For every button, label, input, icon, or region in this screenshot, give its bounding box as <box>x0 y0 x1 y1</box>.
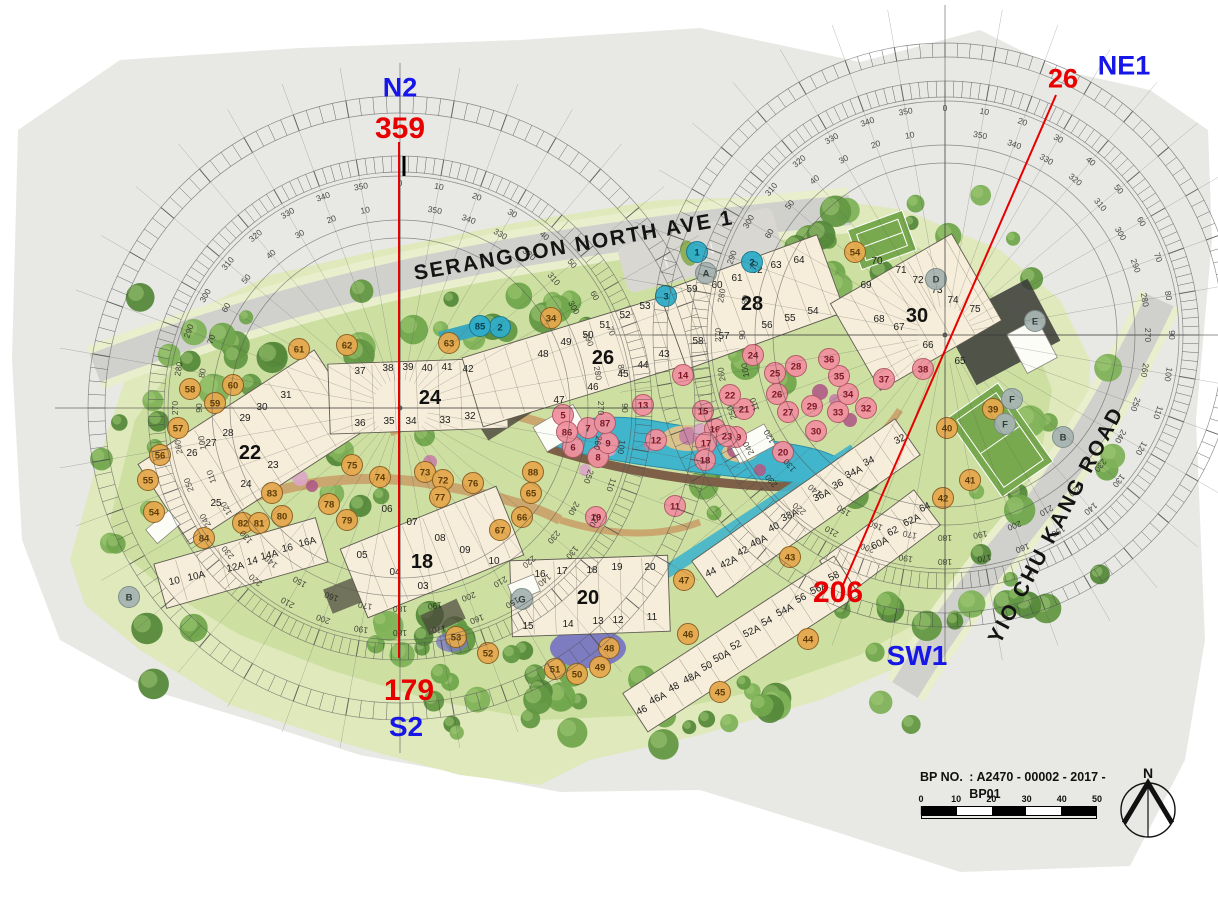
amenity-marker: B <box>1053 427 1074 448</box>
svg-text:29: 29 <box>807 401 818 412</box>
compass-degree-label: 80 <box>739 294 751 305</box>
amenity-marker: 24 <box>743 345 764 366</box>
svg-text:30: 30 <box>811 426 822 437</box>
scale-tick-label: 30 <box>1022 794 1032 804</box>
svg-text:6: 6 <box>570 442 575 453</box>
svg-text:32: 32 <box>861 403 872 414</box>
unit-number: 58 <box>692 336 704 347</box>
amenity-marker: 54 <box>144 502 165 523</box>
svg-text:62: 62 <box>342 340 353 351</box>
flower-bed <box>754 464 766 476</box>
scale-segment <box>922 807 957 815</box>
svg-text:76: 76 <box>468 478 479 489</box>
amenity-marker: 57 <box>168 418 189 439</box>
unit-number: 66 <box>922 340 934 351</box>
svg-text:E: E <box>1032 316 1038 327</box>
svg-text:66: 66 <box>517 512 528 523</box>
svg-text:55: 55 <box>143 475 154 486</box>
block-number: 18 <box>411 551 433 573</box>
svg-text:63: 63 <box>444 338 455 349</box>
compass-degree-label: 80 <box>196 367 208 378</box>
amenity-marker: B <box>119 587 140 608</box>
unit-number: 05 <box>356 550 368 561</box>
svg-text:14: 14 <box>678 370 689 381</box>
svg-text:23: 23 <box>722 431 733 442</box>
svg-text:88: 88 <box>528 467 539 478</box>
scale-segment <box>957 807 992 815</box>
amenity-marker: 58 <box>180 379 201 400</box>
svg-text:33: 33 <box>833 407 844 418</box>
survey-bearing-s2: 179 <box>384 674 434 708</box>
unit-number: 42 <box>462 364 474 375</box>
amenity-marker: F <box>995 414 1016 435</box>
unit-number: 74 <box>947 295 959 306</box>
unit-number: 36 <box>354 418 366 429</box>
amenity-marker: 40 <box>937 418 958 439</box>
scale-segment <box>1061 807 1096 815</box>
amenity-marker: 41 <box>960 470 981 491</box>
unit-number: 08 <box>434 533 446 544</box>
site-plan-page: ↑↓ 2226272829303123242524373839404142363… <box>0 0 1218 903</box>
svg-text:74: 74 <box>375 472 386 483</box>
scale-bar-segments <box>921 806 1097 816</box>
compass-degree-label: 10 <box>434 181 445 193</box>
compass-degree-label: 80 <box>616 363 628 374</box>
scale-segment <box>992 807 1027 815</box>
unit-number: 26 <box>186 448 198 459</box>
amenity-marker: 74 <box>370 467 391 488</box>
svg-text:42: 42 <box>938 493 949 504</box>
unit-number: 39 <box>402 362 414 373</box>
svg-text:40: 40 <box>942 423 953 434</box>
amenity-marker: E <box>1025 311 1046 332</box>
svg-text:8: 8 <box>595 452 600 463</box>
amenity-marker: 67 <box>490 520 511 541</box>
svg-text:80: 80 <box>277 511 288 522</box>
svg-text:28: 28 <box>791 361 802 372</box>
svg-text:87: 87 <box>600 418 611 429</box>
amenity-marker: 43 <box>780 547 801 568</box>
unit-number: 29 <box>239 413 251 424</box>
svg-text:21: 21 <box>739 404 750 415</box>
scale-tick-label: 40 <box>1057 794 1067 804</box>
svg-text:38: 38 <box>918 364 929 375</box>
amenity-marker: 26 <box>767 384 788 405</box>
unit-number: 61 <box>731 273 743 284</box>
svg-text:82: 82 <box>238 518 249 529</box>
amenity-marker: 29 <box>802 396 823 417</box>
amenity-marker: 30 <box>806 421 827 442</box>
unit-number: 63 <box>770 260 782 271</box>
amenity-marker: 28 <box>786 356 807 377</box>
amenity-marker: 49 <box>590 657 611 678</box>
svg-text:50: 50 <box>572 669 583 680</box>
svg-text:47: 47 <box>679 575 690 586</box>
svg-text:A: A <box>703 268 710 279</box>
amenity-marker: 78 <box>319 494 340 515</box>
unit-number: 72 <box>912 275 924 286</box>
svg-text:43: 43 <box>785 552 796 563</box>
survey-point-n2: N2 <box>383 73 418 104</box>
scale-segment <box>1026 807 1061 815</box>
amenity-marker: 66 <box>512 507 533 528</box>
compass-degree-label: 10 <box>360 204 371 216</box>
amenity-marker: 36 <box>819 349 840 370</box>
unit-number: 07 <box>406 517 418 528</box>
svg-text:20: 20 <box>778 447 789 458</box>
svg-text:1: 1 <box>694 247 700 258</box>
scale-tick-label: 50 <box>1092 794 1102 804</box>
amenity-marker: 42 <box>933 488 954 509</box>
unit-number: 56 <box>761 320 773 331</box>
unit-number: 54 <box>807 306 819 317</box>
compass-degree-label: 80 <box>1163 290 1175 301</box>
svg-text:3: 3 <box>663 291 668 302</box>
unit-number: 06 <box>381 504 393 515</box>
svg-text:65: 65 <box>526 488 537 499</box>
svg-text:25: 25 <box>770 368 781 379</box>
unit-number: 34 <box>405 416 417 427</box>
amenity-marker: 61 <box>289 339 310 360</box>
scale-bar-baseline <box>921 816 1097 819</box>
unit-number: 31 <box>280 390 292 401</box>
scale-tick-label: 20 <box>986 794 996 804</box>
amenity-marker: 38 <box>913 359 934 380</box>
svg-text:83: 83 <box>267 488 278 499</box>
unit-number: 09 <box>459 545 471 556</box>
svg-text:44: 44 <box>803 634 814 645</box>
amenity-marker: 52 <box>478 643 499 664</box>
unit-number: 49 <box>560 337 572 348</box>
unit-number: 64 <box>793 255 805 266</box>
svg-text:35: 35 <box>834 371 845 382</box>
scale-tick-label: 0 <box>918 794 923 804</box>
amenity-marker: 88 <box>523 462 544 483</box>
unit-number: 19 <box>611 562 623 573</box>
svg-text:60: 60 <box>228 380 239 391</box>
amenity-marker: 47 <box>674 570 695 591</box>
unit-number: 23 <box>267 460 279 471</box>
survey-point-s2: S2 <box>389 711 423 743</box>
svg-text:37: 37 <box>879 374 890 385</box>
svg-text:22: 22 <box>725 390 736 401</box>
svg-text:79: 79 <box>342 515 353 526</box>
svg-text:45: 45 <box>715 687 726 698</box>
svg-text:72: 72 <box>438 475 449 486</box>
unit-number: 55 <box>784 313 796 324</box>
amenity-marker: 2 <box>490 317 511 338</box>
svg-text:5: 5 <box>560 410 566 421</box>
site-plan-map: ↑↓ 2226272829303123242524373839404142363… <box>0 0 1218 903</box>
compass-degree-label: 10 <box>979 106 990 118</box>
amenity-marker: 87 <box>595 413 616 434</box>
amenity-marker: 85 <box>470 316 491 337</box>
amenity-marker: 50 <box>567 664 588 685</box>
unit-number: 13 <box>592 616 604 627</box>
svg-text:46: 46 <box>683 629 694 640</box>
amenity-marker: 25 <box>765 363 786 384</box>
survey-bearing-sw1: 206 <box>813 576 863 610</box>
unit-number: 53 <box>639 301 651 312</box>
block-number: 30 <box>906 305 928 327</box>
amenity-marker: 46 <box>678 624 699 645</box>
svg-text:13: 13 <box>638 400 649 411</box>
amenity-marker: 65 <box>521 483 542 504</box>
unit-number: 30 <box>256 402 268 413</box>
svg-text:B: B <box>126 592 133 603</box>
svg-text:78: 78 <box>324 499 335 510</box>
svg-text:54: 54 <box>149 507 160 518</box>
svg-text:57: 57 <box>173 423 184 434</box>
unit-number: 40 <box>421 363 433 374</box>
svg-text:58: 58 <box>185 384 196 395</box>
svg-text:F: F <box>1002 419 1008 430</box>
survey-bearing-ne1: 26 <box>1048 64 1078 95</box>
unit-number: 35 <box>383 416 395 427</box>
scale-tick-label: 10 <box>951 794 961 804</box>
svg-text:24: 24 <box>748 350 759 361</box>
survey-point-ne1: NE1 <box>1098 51 1151 82</box>
survey-bearing-n2: 359 <box>375 112 425 146</box>
block-number: 20 <box>577 587 599 609</box>
amenity-marker: D <box>926 269 947 290</box>
north-arrow: N <box>1112 762 1184 846</box>
unit-number: 70 <box>871 256 883 267</box>
amenity-marker: 44 <box>798 629 819 650</box>
amenity-marker: 59 <box>205 393 226 414</box>
unit-number: 14 <box>562 619 574 630</box>
unit-number: 03 <box>417 581 429 592</box>
amenity-marker: 83 <box>262 483 283 504</box>
amenity-marker: 3 <box>656 286 677 307</box>
svg-text:49: 49 <box>595 662 606 673</box>
amenity-marker: 32 <box>856 398 877 419</box>
svg-text:41: 41 <box>965 475 976 486</box>
scale-bar: 01020304050 <box>921 794 1097 819</box>
scale-bar-labels: 01020304050 <box>921 794 1097 805</box>
survey-point-sw1: SW1 <box>887 640 948 672</box>
block-number: 22 <box>239 442 261 464</box>
amenity-marker: 55 <box>138 470 159 491</box>
svg-text:F: F <box>1009 394 1015 405</box>
svg-text:9: 9 <box>605 438 610 449</box>
svg-text:85: 85 <box>475 321 486 332</box>
unit-number: 46 <box>587 382 599 393</box>
compass-degree-label: 10 <box>904 129 915 141</box>
amenity-marker: 22 <box>720 385 741 406</box>
unit-number: 10 <box>488 556 500 567</box>
amenity-marker: 11 <box>665 496 686 517</box>
amenity-marker: 45 <box>710 682 731 703</box>
unit-number: 12 <box>612 615 624 626</box>
unit-number: 11 <box>647 612 658 623</box>
svg-text:12: 12 <box>651 435 662 446</box>
svg-text:39: 39 <box>988 404 999 415</box>
unit-number: 41 <box>441 362 453 373</box>
amenity-marker: 23 <box>717 426 738 447</box>
svg-text:77: 77 <box>435 492 446 503</box>
